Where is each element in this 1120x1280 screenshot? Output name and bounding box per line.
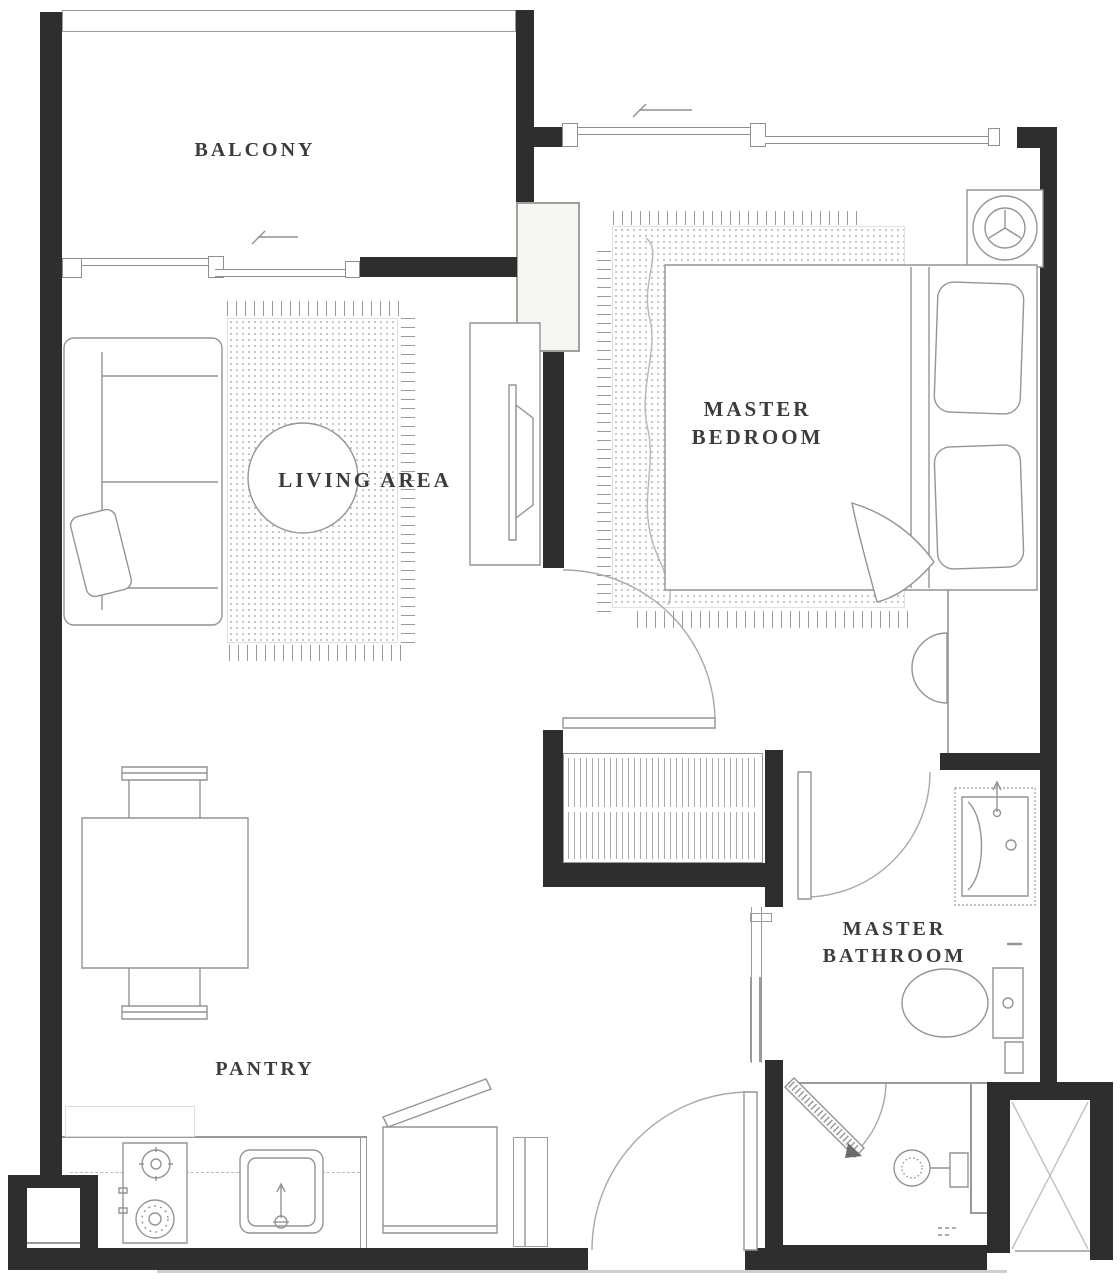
master-bathroom-label-line2: BATHROOM: [787, 943, 1002, 970]
shower-door-swing: [858, 1084, 886, 1150]
toilet-bowl: [902, 969, 988, 1037]
service-shaft-cross: [1012, 1102, 1088, 1249]
tv-back: [516, 405, 533, 518]
balcony-label: BALCONY: [150, 137, 360, 164]
toilet-shelf: [1005, 1042, 1023, 1073]
floor-plan: BALCONY LIVING AREA MASTER BEDROOM MASTE…: [0, 0, 1120, 1280]
pantry-label: PANTRY: [180, 1056, 350, 1083]
shower-door: [785, 1078, 886, 1158]
bedroom-level-mark: [633, 104, 692, 117]
bedside-half-table: [912, 633, 947, 703]
tv-console: [470, 323, 540, 565]
master-bedroom-label-line2: BEDROOM: [655, 423, 860, 451]
entrance-door-swing: [592, 1092, 750, 1250]
bed-pillow-2: [934, 445, 1024, 570]
toilet-tank: [993, 968, 1023, 1038]
bathroom-vanity: [955, 782, 1035, 905]
shower-fixture: [894, 1150, 968, 1235]
balcony-level-mark: [252, 231, 298, 244]
entrance-door: [592, 1092, 757, 1250]
sofa: [64, 338, 222, 625]
living-area-label: LIVING AREA: [235, 467, 495, 494]
bedroom-door-swing: [563, 570, 715, 722]
master-bedroom-label: MASTER BEDROOM: [655, 395, 860, 451]
dining-table: [82, 818, 248, 968]
bathroom-door-leaf: [798, 772, 811, 899]
master-bedroom-label-line1: MASTER: [655, 395, 860, 423]
bathroom-door: [798, 772, 930, 899]
dining-set: [82, 767, 248, 1019]
master-bathroom-label: MASTER BATHROOM: [787, 916, 1002, 970]
kitchen-sink: [240, 1150, 323, 1233]
refrigerator-with-open-door: [383, 1079, 497, 1233]
master-bathroom-label-line1: MASTER: [787, 916, 1002, 943]
entrance-door-leaf: [744, 1092, 757, 1250]
bedroom-door-leaf: [563, 718, 715, 728]
refrigerator-open-door: [383, 1079, 491, 1127]
two-burner-stove: [119, 1143, 187, 1243]
bathroom-door-swing: [805, 772, 930, 897]
washing-machine: [967, 190, 1043, 267]
bed-pillow-1: [934, 282, 1024, 415]
bedroom-door: [563, 570, 715, 728]
shower-floor-drain-marks: [938, 1228, 956, 1235]
tv-screen: [509, 385, 516, 540]
furniture-layer: [0, 0, 1120, 1280]
